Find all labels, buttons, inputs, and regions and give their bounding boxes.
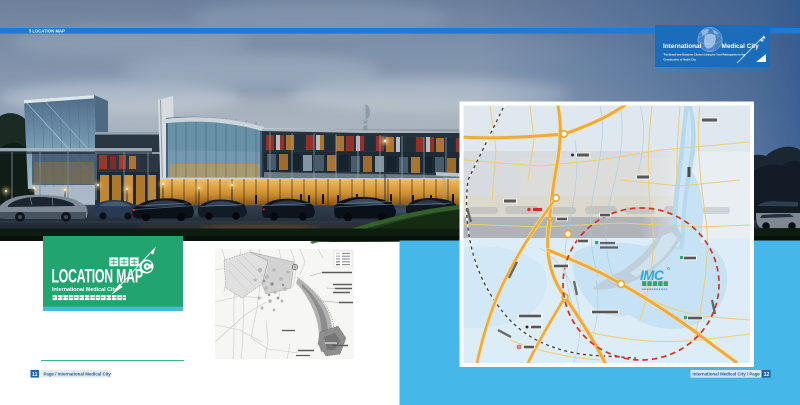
svg-text:IMC: IMC xyxy=(640,268,664,283)
svg-text:Page / International Medical C: Page / International Medical City xyxy=(44,372,112,377)
svg-text:International: International xyxy=(663,43,702,50)
svg-text:Construction of Health City: Construction of Health City xyxy=(664,58,697,61)
svg-text:The Brand-new Business Cluster: The Brand-new Business Cluster Asking fo… xyxy=(664,54,746,57)
svg-text:LOCATION MAP: LOCATION MAP xyxy=(32,28,65,33)
svg-text:International Medical City / P: International Medical City / Page xyxy=(693,372,761,377)
svg-text:11: 11 xyxy=(32,372,38,378)
svg-text:LOCATION MAP: LOCATION MAP xyxy=(52,267,144,287)
svg-text:12: 12 xyxy=(764,372,770,378)
svg-text:International Medical City: International Medical City xyxy=(52,287,117,293)
